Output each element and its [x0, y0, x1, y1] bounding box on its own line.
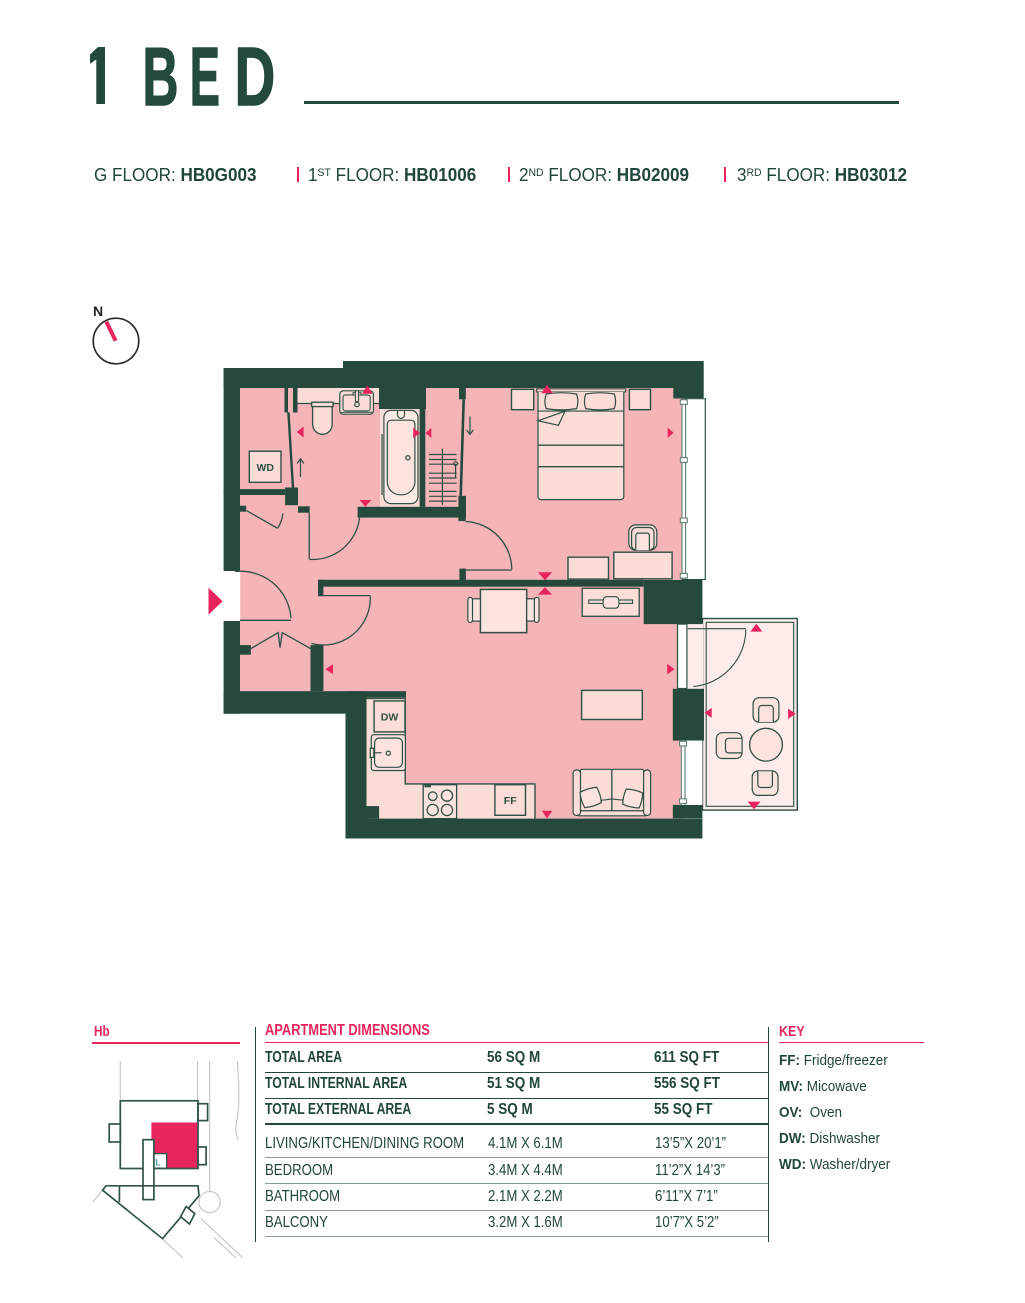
svg-text:WD: WD — [256, 462, 274, 474]
svg-text:DW: DW — [381, 712, 399, 724]
svg-text:L: L — [155, 1158, 161, 1168]
svg-text:FF: FF — [504, 795, 517, 807]
svg-text:N: N — [93, 303, 103, 319]
